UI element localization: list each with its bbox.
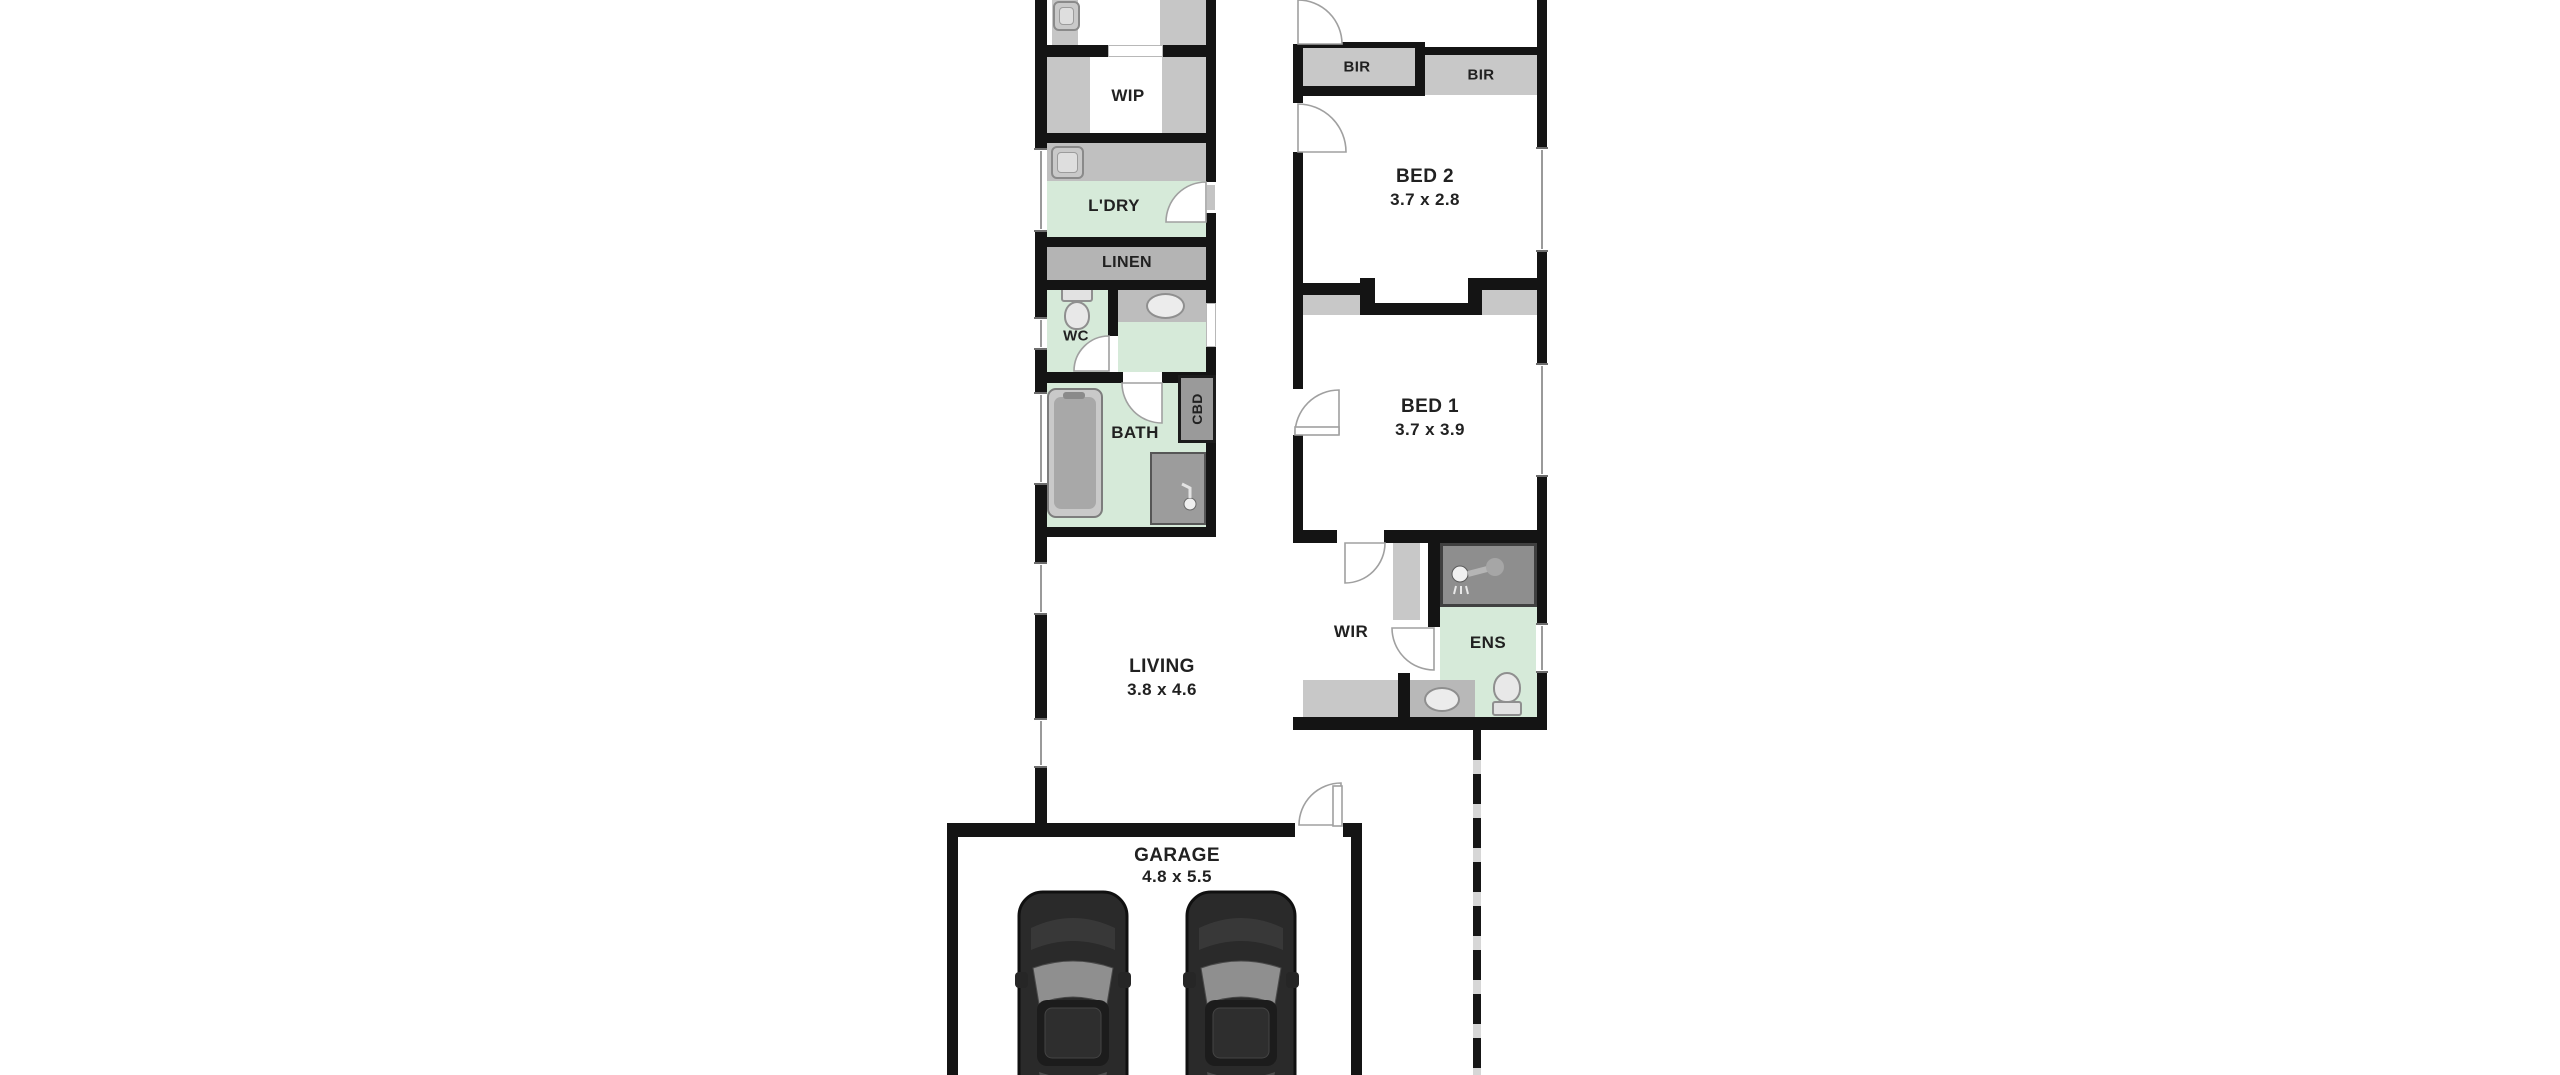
wir-robe-bottom [1303,680,1398,717]
wip-bench-left [1047,55,1090,133]
window-marker [1034,718,1047,768]
toilet-icon [1492,701,1522,716]
bath-door-gap [1123,372,1162,383]
wall [1108,290,1118,337]
car-icon [1183,888,1299,1075]
wall [1035,237,1216,247]
wall [1360,278,1375,303]
wir-door-gap [1337,530,1384,543]
wall [1303,42,1415,48]
bed2-door-gap [1293,103,1303,152]
bathtub-icon [1047,388,1103,518]
wall [1303,86,1415,96]
toilet-icon [1064,301,1090,330]
wall [1035,133,1216,143]
cased-opening [1108,45,1163,57]
wall [1293,530,1547,543]
room-label-bir-left: BIR [1343,59,1370,76]
wall [1468,278,1482,303]
window-marker [1034,562,1047,615]
room-label-bed1: BED 1 [1401,396,1459,418]
shower-head-icon [1152,454,1204,523]
floor-plan: WIP L'DRY LINEN WC BATH CBD BIR BIR BED … [947,0,1562,1075]
room-dims-garage: 4.8 x 5.5 [1142,867,1212,887]
room-label-cbd: CBD [1189,393,1205,425]
door-swing-arc [1298,0,1342,44]
vanity-opening [1206,303,1216,347]
window-marker [1536,363,1548,477]
wall [1293,717,1547,730]
window-marker [1536,147,1548,252]
car-icon [1015,888,1131,1075]
room-label-ens: ENS [1470,633,1506,653]
wir-robe-side [1393,543,1420,620]
door-leaf [1333,786,1342,826]
room-label-wir: WIR [1334,622,1368,642]
bed1-door-gap [1293,389,1303,435]
wall [1298,283,1360,295]
sink-icon [1053,1,1080,31]
room-dims-living: 3.8 x 4.6 [1127,680,1197,700]
window-marker [1034,148,1047,232]
kitchen-bench-right [1160,0,1206,45]
wall [1035,280,1216,290]
wall [1206,0,1216,537]
bed1-robe-right [1482,290,1537,315]
wall [1428,543,1440,627]
wall [1360,303,1482,315]
wall [947,823,958,1075]
door-leaf [1207,185,1215,210]
bed1-robe-left [1303,295,1360,315]
wall [1415,42,1425,96]
window-marker [1536,623,1548,673]
ens-door-gap [1428,627,1440,673]
shower-head-icon [1443,546,1534,604]
door-swing-arc [1298,104,1346,152]
room-label-living: LIVING [1129,656,1195,678]
wip-bench-right [1162,55,1206,133]
entry-door-gap [1293,0,1303,44]
wall [1425,47,1537,55]
room-dims-bed2: 3.7 x 2.8 [1390,190,1460,210]
room-label-wip: WIP [1111,86,1144,106]
wall [1351,823,1362,1075]
shower-icon [1150,452,1206,525]
wall [1035,527,1216,537]
door-swing-arc [1345,543,1385,583]
window-marker [1034,392,1047,485]
wc-door-gap [1108,336,1118,372]
room-label-bath: BATH [1111,423,1159,443]
sink-icon [1424,687,1460,712]
shower-icon [1440,543,1537,607]
toilet-icon [1493,672,1521,703]
room-label-garage: GARAGE [1134,845,1220,867]
garage-door-gap [1295,823,1343,837]
room-label-linen: LINEN [1102,254,1152,272]
floorplan-page: { "palette": { "wall": "#141414", "floor… [0,0,2560,1075]
boundary-dashed-line [1473,730,1481,1075]
room-label-bir-right: BIR [1467,67,1494,84]
wall [1482,278,1537,290]
room-label-wc: WC [1063,328,1089,345]
door-swing-arc [1299,783,1341,825]
sink-icon [1051,146,1084,179]
sink-icon [1146,293,1185,319]
room-label-ldry: L'DRY [1088,196,1140,216]
window-marker [1034,317,1047,350]
room-dims-bed1: 3.7 x 3.9 [1395,420,1465,440]
room-label-bed2: BED 2 [1396,166,1454,188]
wall [1293,0,1303,530]
